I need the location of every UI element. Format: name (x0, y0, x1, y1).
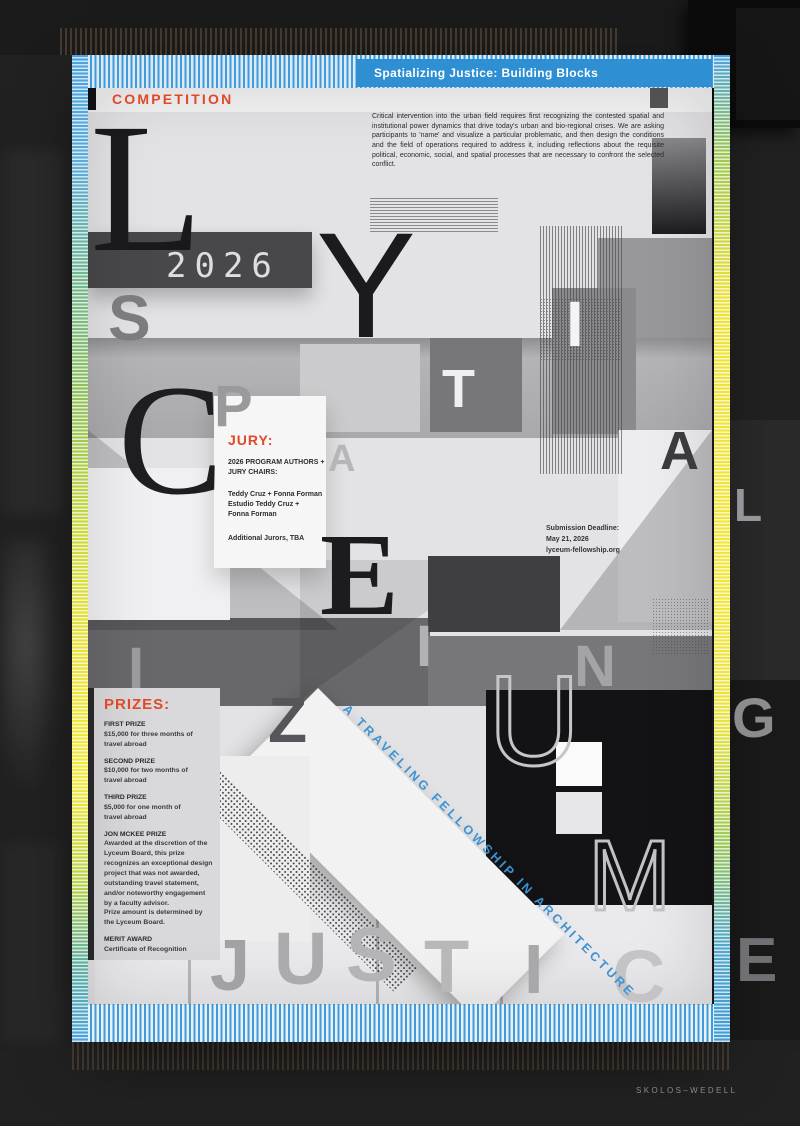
prizes-panel-edge (88, 688, 94, 960)
prize-item: JON MCKEE PRIZEAwarded at the discretion… (104, 830, 214, 928)
title-banner: Spatializing Justice: Building Blocks (356, 59, 712, 87)
poster-letter-i: I (566, 292, 584, 356)
poster-letter-c: C (118, 362, 223, 520)
background-smudge-left (4, 150, 62, 510)
poster-letter-u: U (274, 922, 327, 996)
jury-heading: JURY: (228, 432, 273, 448)
prize-description: $10,000 for two months of travel abroad (104, 766, 214, 786)
submission-deadline-label: Submission Deadline: (546, 524, 666, 535)
poster-letter-i: I (128, 640, 144, 698)
prize-title: MERIT AWARD (104, 935, 214, 945)
prize-title: SECOND PRIZE (104, 757, 214, 767)
poster-letter-e: E (320, 516, 399, 634)
prize-title: THIRD PRIZE (104, 793, 214, 803)
title-banner-text: Spatializing Justice: Building Blocks (374, 66, 598, 80)
prize-description: $15,000 for three months of travel abroa… (104, 730, 214, 750)
competition-strip-square (650, 88, 668, 108)
border-left-halftone (72, 55, 88, 1042)
designer-credit: SKOLOS–WEDELL (636, 1086, 737, 1095)
poster-letter-t: T (424, 930, 469, 1004)
prizes-list: FIRST PRIZE$15,000 for three months of t… (104, 720, 214, 962)
prize-description: Certificate of Recognition (104, 945, 214, 955)
poster-letter-u: U (488, 658, 580, 786)
prize-item: THIRD PRIZE$5,000 for one month of trave… (104, 793, 214, 823)
prize-item: SECOND PRIZE$10,000 for two months of tr… (104, 757, 214, 787)
poster-letter-m: M (588, 826, 671, 926)
prize-description: $5,000 for one month of travel abroad (104, 803, 214, 823)
prize-title: JON MCKEE PRIZE (104, 830, 214, 840)
border-right-halftone (714, 55, 730, 1042)
jury-subheading: 2026 Program Authors + Jury Chairs: (228, 458, 328, 478)
prize-description: Awarded at the discretion of the Lyceum … (104, 839, 214, 928)
prize-item: MERIT AWARDCertificate of Recognition (104, 935, 214, 955)
background-stripe-texture-bottom (72, 1042, 730, 1070)
background-smudge-left-mid (0, 540, 64, 800)
poster-letter-z: Z (268, 688, 307, 752)
background-block-top-right-inner (736, 8, 800, 120)
poster-letter-e: E (736, 930, 777, 992)
submission-date: May 21, 2026 (546, 535, 666, 546)
background-stripe-texture-top (60, 28, 620, 55)
submission-url: lyceum-fellowship.org (546, 546, 666, 557)
year-label: 2026 (166, 246, 280, 286)
background-smudge-left-low (2, 840, 62, 1040)
poster-scene: Spatializing Justice: Building Blocks CO… (0, 0, 800, 1126)
poster-letter-p: P (214, 378, 253, 436)
background-slab-right-upper (728, 420, 800, 680)
jury-names: Teddy Cruz + Fonna Forman Estudio Teddy … (228, 490, 328, 519)
poster-letter-t: T (442, 362, 475, 416)
halftone-patch (652, 598, 708, 656)
prizes-heading: PRIZES: (104, 696, 170, 713)
poster-letter-i: I (416, 618, 432, 676)
poster-letter-s: S (108, 286, 151, 350)
prize-item: FIRST PRIZE$15,000 for three months of t… (104, 720, 214, 750)
poster-letter-a: A (660, 424, 699, 478)
intro-paragraph: Critical intervention into the urban fie… (372, 112, 664, 170)
poster-letter-j: J (210, 930, 250, 1002)
block-dark-center (428, 556, 560, 632)
submission-block: Submission Deadline: May 21, 2026 lyceum… (546, 524, 666, 557)
jury-additional: Additional Jurors, TBA (228, 534, 328, 544)
poster-letter-g: G (732, 690, 776, 746)
poster-letter-a: A (328, 440, 355, 478)
prize-title: FIRST PRIZE (104, 720, 214, 730)
poster-letter-l: L (734, 482, 762, 528)
poster-letter-i: I (524, 934, 543, 1004)
poster-letter-s: S (346, 918, 397, 994)
poster-letter-y: Y (316, 210, 416, 360)
competition-label: COMPETITION (112, 86, 233, 112)
